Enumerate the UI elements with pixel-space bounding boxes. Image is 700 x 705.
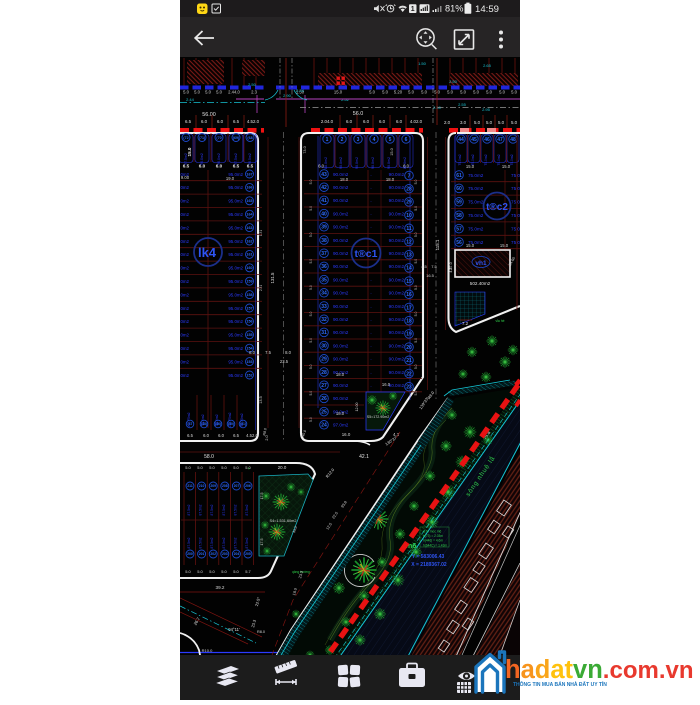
svg-text:5.20: 5.20 <box>394 90 403 95</box>
svg-text:90.0m2: 90.0m2 <box>389 317 405 322</box>
svg-text:87.5m2: 87.5m2 <box>222 537 226 548</box>
svg-text:90.0m2: 90.0m2 <box>333 330 349 335</box>
svg-text:28: 28 <box>321 370 327 376</box>
svg-text:.0m2: .0m2 <box>180 172 190 177</box>
svg-text:7.5: 7.5 <box>265 350 271 355</box>
svg-text:5.0: 5.0 <box>447 90 453 95</box>
svg-text:5.0: 5.0 <box>486 90 492 95</box>
svg-text:6.5: 6.5 <box>187 433 193 438</box>
svg-text:87.5m2: 87.5m2 <box>233 537 237 548</box>
svg-text:1.31: 1.31 <box>259 230 263 236</box>
svg-text:75.0: 75.0 <box>511 240 520 245</box>
svg-text:159: 159 <box>246 280 252 284</box>
svg-text:90.0m2: 90.0m2 <box>333 357 349 362</box>
svg-text:6.0: 6.0 <box>396 119 403 124</box>
svg-text:6.0: 6.0 <box>203 433 209 438</box>
svg-text:87.5m2: 87.5m2 <box>199 537 203 548</box>
svg-text:211: 211 <box>187 484 193 488</box>
svg-text:33: 33 <box>321 304 327 310</box>
svg-text:90.0m2: 90.0m2 <box>389 343 405 348</box>
svg-text:202: 202 <box>210 552 216 556</box>
svg-text:5.0: 5.0 <box>414 312 418 317</box>
svg-text:95.0m2: 95.0m2 <box>228 306 243 311</box>
svg-text:1: 1 <box>411 6 415 13</box>
svg-text:5.0: 5.0 <box>369 90 375 95</box>
svg-text:.0m2: .0m2 <box>180 239 190 244</box>
svg-text:6.0: 6.0 <box>199 164 206 169</box>
svg-text:158: 158 <box>246 293 252 297</box>
svg-text:57: 57 <box>456 226 462 232</box>
svg-text:2.44: 2.44 <box>186 97 195 102</box>
svg-text:.0m2: .0m2 <box>180 252 190 257</box>
svg-text:6.5: 6.5 <box>233 164 240 169</box>
svg-text:90.0m2: 90.0m2 <box>389 211 405 216</box>
svg-text:hadatvn.com.vn: hadatvn.com.vn <box>505 656 694 684</box>
svg-text:5.0: 5.0 <box>221 465 227 470</box>
svg-text:90.0m2: 90.0m2 <box>339 157 343 169</box>
svg-text:5.0: 5.0 <box>414 206 418 211</box>
svg-text:(71): (71) <box>199 136 206 140</box>
svg-text:90.0m2: 90.0m2 <box>387 157 391 169</box>
svg-text:60: 60 <box>456 186 462 192</box>
svg-text:95.0m2: 95.0m2 <box>228 373 243 378</box>
svg-text:.0m2: .0m2 <box>180 319 190 324</box>
svg-text:90.0m2: 90.0m2 <box>333 185 349 190</box>
svg-text:203: 203 <box>222 552 228 556</box>
svg-text:15.0: 15.0 <box>390 148 394 155</box>
svg-text:THÔNG TIN MUA BÁN NHÀ ĐẤT UY T: THÔNG TIN MUA BÁN NHÀ ĐẤT UY TÍN <box>513 680 607 688</box>
svg-text:17: 17 <box>406 305 412 311</box>
svg-text:27.0: 27.0 <box>449 262 453 269</box>
svg-text:12.00: 12.00 <box>355 403 359 412</box>
svg-text:S4=1.531,60m2: S4=1.531,60m2 <box>270 519 297 523</box>
svg-text:S5=172.90m2: S5=172.90m2 <box>367 415 389 419</box>
svg-text:58.0: 58.0 <box>204 454 214 460</box>
svg-text:13.5: 13.5 <box>259 396 263 403</box>
svg-text:90.0m2: 90.0m2 <box>333 304 349 309</box>
svg-text:vh1: vh1 <box>475 260 487 267</box>
svg-text:2.34: 2.34 <box>296 88 305 93</box>
svg-text:204: 204 <box>234 552 240 556</box>
svg-text:6: 6 <box>405 137 408 143</box>
svg-text:152: 152 <box>246 373 252 377</box>
svg-text:6.0: 6.0 <box>217 119 224 124</box>
svg-text:(51): (51) <box>240 422 246 426</box>
svg-text:5.0: 5.0 <box>197 569 203 574</box>
svg-text:7: 7 <box>408 173 411 179</box>
svg-text:.0m2: .0m2 <box>180 266 190 271</box>
svg-text:12: 12 <box>406 239 412 245</box>
svg-text:24: 24 <box>321 423 327 429</box>
svg-text:2: 2 <box>341 137 344 143</box>
svg-text:90.0m2: 90.0m2 <box>355 157 359 169</box>
svg-text:87.5m2: 87.5m2 <box>210 537 214 548</box>
svg-text:2.65: 2.65 <box>483 63 492 68</box>
svg-text:5.0: 5.0 <box>233 465 239 470</box>
svg-text:95.0m2: 95.0m2 <box>228 185 243 190</box>
svg-text:90.0m2: 90.0m2 <box>389 251 405 256</box>
svg-text:28: 28 <box>406 187 412 193</box>
svg-text:95.0m2: 95.0m2 <box>228 333 243 338</box>
svg-text:75.0m2: 75.0m2 <box>484 154 488 165</box>
svg-text:208: 208 <box>222 484 228 488</box>
svg-text:95.0m2: 95.0m2 <box>228 239 243 244</box>
svg-text:(46): (46) <box>215 422 221 426</box>
svg-text:18.0: 18.0 <box>340 177 349 182</box>
svg-text:95.0m2: 95.0m2 <box>228 359 243 364</box>
svg-text:7.5: 7.5 <box>431 264 437 269</box>
svg-text:90.0m2: 90.0m2 <box>333 277 349 282</box>
svg-text:42: 42 <box>321 185 327 191</box>
svg-text:h(644C) = 1.43m: h(644C) = 1.43m <box>423 543 447 547</box>
svg-text:Y = 583006.43: Y = 583006.43 <box>412 554 445 560</box>
svg-text:75.0m2: 75.0m2 <box>468 173 484 178</box>
svg-text:.0m2: .0m2 <box>180 306 190 311</box>
svg-text:58: 58 <box>456 213 462 219</box>
svg-text:115.1: 115.1 <box>435 239 440 250</box>
svg-text:(48): (48) <box>201 422 207 426</box>
svg-text:2.50: 2.50 <box>449 79 458 84</box>
svg-text:75.0m2: 75.0m2 <box>497 154 501 165</box>
svg-text:81%: 81% <box>445 4 463 14</box>
svg-text:95.0m2: 95.0m2 <box>228 319 243 324</box>
svg-text:90.0m2: 90.0m2 <box>389 291 405 296</box>
svg-text:90.0m2: 90.0m2 <box>389 304 405 309</box>
svg-text:207: 207 <box>234 484 240 488</box>
svg-text:44: 44 <box>458 137 464 143</box>
svg-text:.0m2: .0m2 <box>180 346 190 351</box>
svg-text:15.0: 15.0 <box>466 164 475 169</box>
svg-text:5.0: 5.0 <box>499 90 505 95</box>
svg-text:t®c1: t®c1 <box>355 248 378 260</box>
svg-text:32: 32 <box>321 317 327 323</box>
svg-text:205: 205 <box>245 552 251 556</box>
svg-text:15.0: 15.0 <box>466 243 475 248</box>
svg-text:90.0m2: 90.0m2 <box>389 370 405 375</box>
svg-text:90.0m2: 90.0m2 <box>333 238 349 243</box>
svg-text:90.0m2: 90.0m2 <box>333 291 349 296</box>
svg-text:90.0m2: 90.0m2 <box>371 157 375 169</box>
svg-text:209: 209 <box>210 484 216 488</box>
svg-text:26: 26 <box>321 396 327 402</box>
svg-text:90.0m2: 90.0m2 <box>333 211 349 216</box>
svg-text:5.0: 5.0 <box>194 90 200 95</box>
svg-text:90.0m2: 90.0m2 <box>389 277 405 282</box>
svg-text:5.0: 5.0 <box>216 90 222 95</box>
svg-text:87.5m2: 87.5m2 <box>210 504 214 515</box>
svg-text:20.0: 20.0 <box>278 465 287 470</box>
svg-text:5.0: 5.0 <box>309 417 313 422</box>
svg-text:95.0m2: 95.0m2 <box>228 172 243 177</box>
svg-text:h(446) = 4.6m: h(446) = 4.6m <box>423 539 443 543</box>
svg-text:90.0m2: 90.0m2 <box>333 383 349 388</box>
svg-text:87.5m2: 87.5m2 <box>245 504 249 515</box>
svg-text:200: 200 <box>187 552 193 556</box>
svg-text:6.0: 6.0 <box>216 164 223 169</box>
svg-text:90.0m2: 90.0m2 <box>333 225 349 230</box>
svg-text:4: 4 <box>373 137 376 143</box>
svg-text:88.0m2: 88.0m2 <box>324 157 328 169</box>
svg-text:5.0: 5.0 <box>414 338 418 343</box>
svg-text:6.0: 6.0 <box>218 433 224 438</box>
svg-text:155: 155 <box>246 333 252 337</box>
svg-text:17.5: 17.5 <box>260 493 264 500</box>
svg-text:90.0m2: 90.0m2 <box>333 317 349 322</box>
svg-text:5.0: 5.0 <box>197 465 203 470</box>
svg-text:(69): (69) <box>233 136 240 140</box>
svg-text:t®c2: t®c2 <box>486 202 508 213</box>
svg-text:31: 31 <box>321 330 327 336</box>
svg-text:45: 45 <box>471 137 477 143</box>
svg-text:.0m2: .0m2 <box>180 292 190 297</box>
svg-text:4.52.0: 4.52.0 <box>247 119 260 124</box>
svg-text:5.7: 5.7 <box>245 569 251 574</box>
svg-text:5.0: 5.0 <box>185 569 191 574</box>
svg-text:.0m2: .0m2 <box>180 279 190 284</box>
svg-text:6.5: 6.5 <box>185 119 192 124</box>
svg-text:19: 19 <box>406 332 412 338</box>
svg-text:18.0: 18.0 <box>386 177 395 182</box>
svg-text:40: 40 <box>321 211 327 217</box>
svg-text:18.0: 18.0 <box>336 372 345 377</box>
svg-text:56.00: 56.00 <box>202 112 216 118</box>
svg-text:.0m2: .0m2 <box>180 359 190 364</box>
svg-text:5.0: 5.0 <box>414 232 418 237</box>
svg-text:75.0m2: 75.0m2 <box>468 226 484 231</box>
svg-text:5.0: 5.0 <box>486 120 493 125</box>
svg-text:87.5m2: 87.5m2 <box>199 504 203 515</box>
svg-text:20: 20 <box>406 345 412 351</box>
svg-text:95.0m2: 95.0m2 <box>228 292 243 297</box>
svg-text:16.5: 16.5 <box>426 273 435 278</box>
svg-text:87.5m2: 87.5m2 <box>187 504 191 515</box>
svg-text:5.0: 5.0 <box>309 364 313 369</box>
svg-text:156: 156 <box>246 320 252 324</box>
svg-text:4.02.0: 4.02.0 <box>410 119 423 124</box>
svg-text:5.0: 5.0 <box>460 90 466 95</box>
svg-text:2.04.0: 2.04.0 <box>321 119 334 124</box>
svg-text:97.0m2: 97.0m2 <box>333 423 349 428</box>
svg-text:34: 34 <box>321 291 327 297</box>
svg-text:157: 157 <box>246 306 252 310</box>
svg-text:6.5: 6.5 <box>183 164 190 169</box>
svg-text:(70: (70 <box>216 136 221 140</box>
svg-text:90.0m2: 90.0m2 <box>389 225 405 230</box>
svg-text:8.0: 8.0 <box>285 350 291 355</box>
svg-text:5.0: 5.0 <box>209 465 215 470</box>
svg-text:.0m2: .0m2 <box>180 373 190 378</box>
svg-text:73.0: 73.0 <box>303 146 307 153</box>
svg-text:.0m2: .0m2 <box>180 199 190 204</box>
svg-text:5.0: 5.0 <box>205 90 211 95</box>
svg-text:90.0m2: 90.0m2 <box>333 198 349 203</box>
svg-text:90.0m2: 90.0m2 <box>389 185 405 190</box>
svg-text:75.0m2: 75.0m2 <box>468 186 484 191</box>
svg-text:90.0m2: 90.0m2 <box>333 264 349 269</box>
svg-text:160: 160 <box>246 266 252 270</box>
svg-text:15.0: 15.0 <box>502 164 511 169</box>
svg-text:30: 30 <box>321 343 327 349</box>
svg-text:5.0: 5.0 <box>414 180 418 185</box>
svg-text:161: 161 <box>246 253 252 257</box>
svg-text:.0m2: .0m2 <box>180 333 190 338</box>
svg-text:90.0m2: 90.0m2 <box>389 383 405 388</box>
svg-text:75.0: 75.0 <box>511 200 520 205</box>
svg-text:5.0: 5.0 <box>183 90 189 95</box>
svg-text:95.0m2: 95.0m2 <box>228 279 243 284</box>
svg-text:5.0: 5.0 <box>511 120 518 125</box>
svg-text:75.0m2: 75.0m2 <box>458 154 462 165</box>
svg-text:(72: (72 <box>183 136 188 140</box>
svg-text:6.5: 6.5 <box>247 164 254 169</box>
svg-text:87.5m2: 87.5m2 <box>187 537 191 548</box>
svg-text:166: 166 <box>246 186 252 190</box>
svg-text:2.90: 2.90 <box>283 93 292 98</box>
svg-text:vỉa hè: vỉa hè <box>495 319 504 323</box>
svg-text:87.5m2: 87.5m2 <box>233 504 237 515</box>
svg-text:56: 56 <box>456 240 462 246</box>
svg-text:X = 2189367.02: X = 2189367.02 <box>411 562 447 568</box>
svg-text:90.0m2: 90.0m2 <box>333 343 349 348</box>
svg-text:18.0: 18.0 <box>336 411 345 416</box>
svg-text:15.0: 15.0 <box>334 90 343 95</box>
svg-text:16.0: 16.0 <box>342 432 351 437</box>
svg-text:5.0: 5.0 <box>233 569 239 574</box>
svg-text:90.0m2: 90.0m2 <box>389 198 405 203</box>
svg-text:5.0: 5.0 <box>382 90 388 95</box>
svg-text:22: 22 <box>406 371 412 377</box>
svg-text:(68: (68 <box>247 136 252 140</box>
svg-text:23: 23 <box>406 385 412 391</box>
svg-text:206: 206 <box>245 484 251 488</box>
svg-text:6.0: 6.0 <box>363 119 370 124</box>
svg-text:5.0: 5.0 <box>209 569 215 574</box>
svg-text:16.0: 16.0 <box>382 382 391 387</box>
svg-text:10: 10 <box>406 213 412 219</box>
svg-text:165: 165 <box>246 199 252 203</box>
svg-text:2.31: 2.31 <box>259 285 263 291</box>
svg-text:95.0m2: 95.0m2 <box>228 266 243 271</box>
svg-text:lk4: lk4 <box>198 245 217 260</box>
svg-text:6.0: 6.0 <box>201 119 208 124</box>
svg-text:75.0m2: 75.0m2 <box>510 154 514 165</box>
svg-text:46: 46 <box>484 137 490 143</box>
svg-text:43: 43 <box>321 172 327 178</box>
svg-text:(47: (47 <box>188 422 193 426</box>
svg-text:95.0m2: 95.0m2 <box>228 212 243 217</box>
svg-text:8.0: 8.0 <box>249 350 255 355</box>
svg-text:61: 61 <box>456 173 462 179</box>
svg-text:3.0: 3.0 <box>460 120 467 125</box>
svg-text:210: 210 <box>199 484 205 488</box>
svg-text:5.0: 5.0 <box>309 232 313 237</box>
svg-text:90.0m2: 90.0m2 <box>333 396 349 401</box>
svg-text:6.0: 6.0 <box>379 119 386 124</box>
svg-text:5.0: 5.0 <box>309 338 313 343</box>
svg-text:131.5: 131.5 <box>270 272 275 284</box>
svg-text:75.0: 75.0 <box>511 186 520 191</box>
svg-text:2.3: 2.3 <box>251 90 257 95</box>
svg-text:36: 36 <box>321 264 327 270</box>
svg-text:6.0: 6.0 <box>403 164 409 169</box>
svg-text:6.0: 6.0 <box>318 164 324 169</box>
svg-text:6.0: 6.0 <box>346 119 353 124</box>
svg-text:14:59: 14:59 <box>475 4 499 15</box>
svg-text:h(73) = 2.03m: h(73) = 2.03m <box>423 534 443 538</box>
svg-text:1: 1 <box>326 137 329 143</box>
svg-text:.0m2: .0m2 <box>180 225 190 230</box>
svg-text:13: 13 <box>406 253 412 259</box>
svg-text:5.0: 5.0 <box>309 312 313 317</box>
svg-text:.0m2: .0m2 <box>180 212 190 217</box>
svg-text:6.5: 6.5 <box>233 433 239 438</box>
svg-text:5.0: 5.0 <box>221 569 227 574</box>
svg-text:23.5: 23.5 <box>280 359 289 364</box>
svg-text:5.0: 5.0 <box>309 391 313 396</box>
svg-text:15: 15 <box>406 279 412 285</box>
svg-text:94°11': 94°11' <box>228 627 240 632</box>
svg-text:4.52.0: 4.52.0 <box>246 433 258 438</box>
svg-text:18: 18 <box>406 319 412 325</box>
svg-text:95.0m2: 95.0m2 <box>228 225 243 230</box>
svg-text:2.0: 2.0 <box>444 120 451 125</box>
svg-text:5.0: 5.0 <box>309 206 313 211</box>
svg-text:162: 162 <box>246 239 252 243</box>
svg-text:5.0: 5.0 <box>474 120 481 125</box>
svg-text:5.0: 5.0 <box>309 180 313 185</box>
svg-text:75.0: 75.0 <box>511 213 520 218</box>
svg-text:1.50: 1.50 <box>418 61 427 66</box>
svg-text:11: 11 <box>406 226 412 232</box>
svg-text:87.5m2: 87.5m2 <box>222 504 226 515</box>
svg-text:90.0m2: 90.0m2 <box>389 330 405 335</box>
svg-text:7.2: 7.2 <box>462 321 469 326</box>
svg-text:39.2: 39.2 <box>216 585 225 590</box>
svg-text:2.55: 2.55 <box>458 102 467 107</box>
svg-text:201: 201 <box>199 552 205 556</box>
svg-text:5.0: 5.0 <box>408 90 414 95</box>
svg-text:47: 47 <box>497 137 503 143</box>
svg-text:.0m2: .0m2 <box>180 185 190 190</box>
svg-text:502.40m2: 502.40m2 <box>470 281 491 286</box>
svg-text:37: 37 <box>321 251 327 257</box>
svg-text:5.0: 5.0 <box>414 259 418 264</box>
svg-text:+: + <box>248 466 251 471</box>
svg-text:167: 167 <box>246 172 252 176</box>
svg-text:5.0: 5.0 <box>511 90 517 95</box>
svg-text:35: 35 <box>321 277 327 283</box>
svg-text:95.0m2: 95.0m2 <box>228 252 243 257</box>
svg-text:6.5: 6.5 <box>233 119 240 124</box>
svg-text:29: 29 <box>406 200 412 206</box>
svg-text:42.1: 42.1 <box>359 454 369 460</box>
svg-text:2.50: 2.50 <box>248 82 257 87</box>
svg-text:25: 25 <box>321 409 327 415</box>
svg-text:164: 164 <box>246 213 253 217</box>
svg-text:38: 38 <box>321 238 327 244</box>
svg-text:17.5: 17.5 <box>260 539 264 546</box>
svg-text:153: 153 <box>246 360 252 364</box>
svg-text:163: 163 <box>246 226 252 230</box>
svg-text:27: 27 <box>321 383 327 389</box>
svg-text:5.0: 5.0 <box>309 259 313 264</box>
svg-text:90.0m2: 90.0m2 <box>389 238 405 243</box>
svg-text:29: 29 <box>321 357 327 363</box>
svg-text:14: 14 <box>406 266 412 272</box>
svg-text:95.0m2: 95.0m2 <box>228 346 243 351</box>
svg-text:75.0: 75.0 <box>511 226 520 231</box>
svg-text:90.0m2: 90.0m2 <box>389 264 405 269</box>
